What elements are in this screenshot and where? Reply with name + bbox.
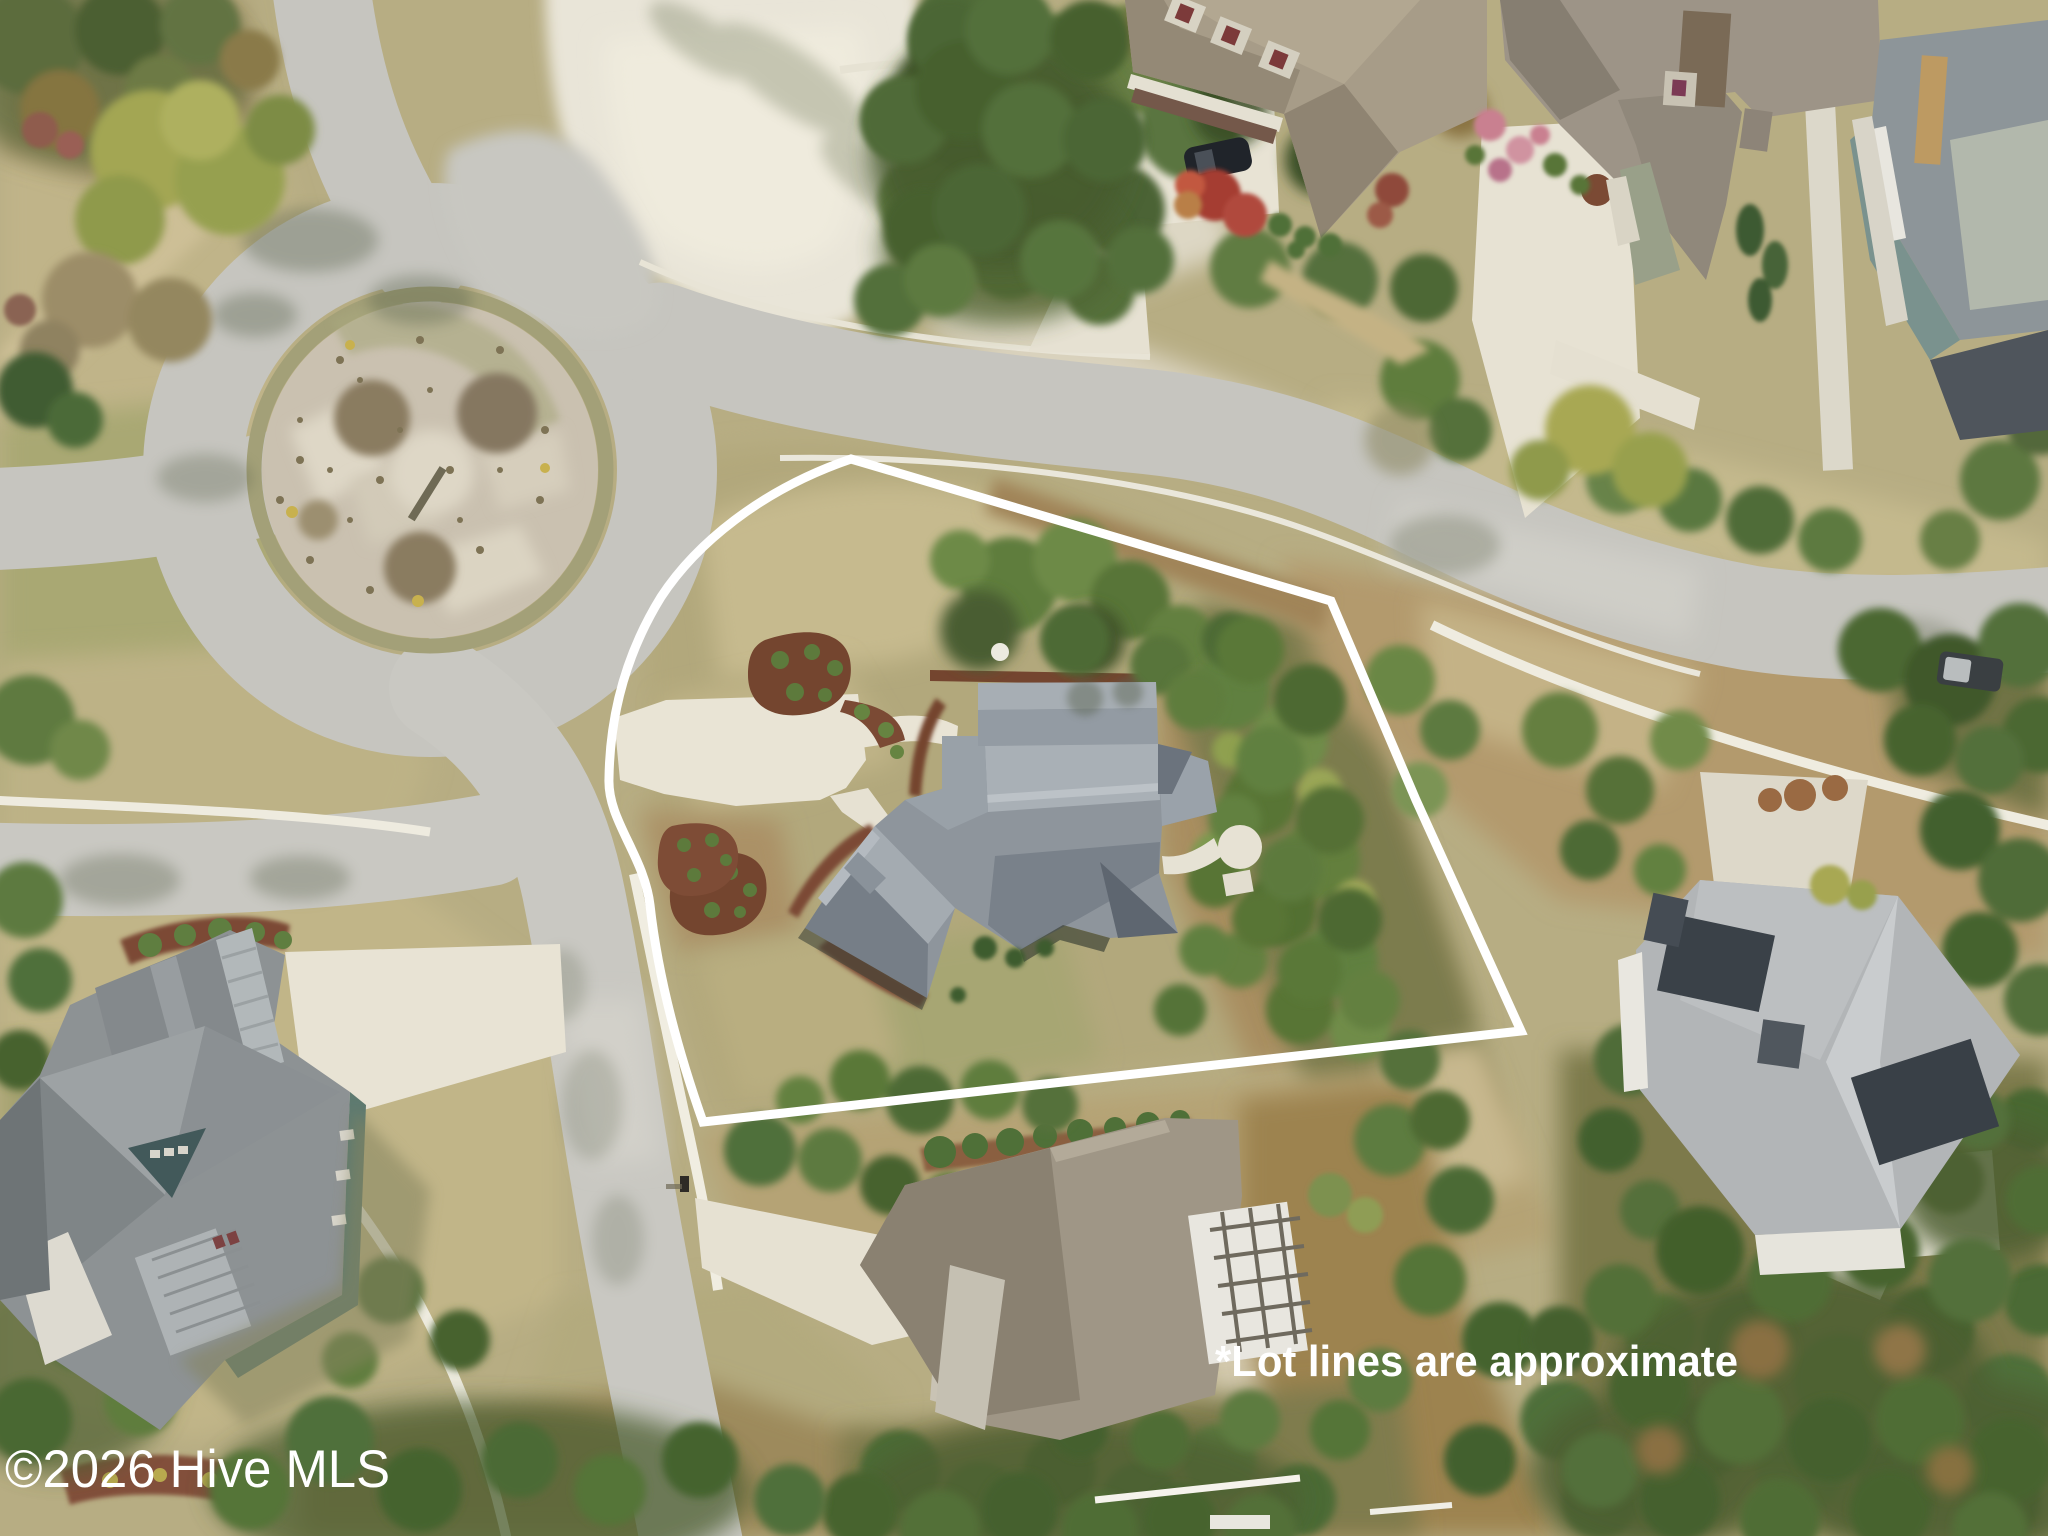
svg-text:©2026 Hive MLS: ©2026 Hive MLS [5,1440,390,1499]
svg-text:*Lot lines are approximate: *Lot lines are approximate [1215,1337,1738,1386]
